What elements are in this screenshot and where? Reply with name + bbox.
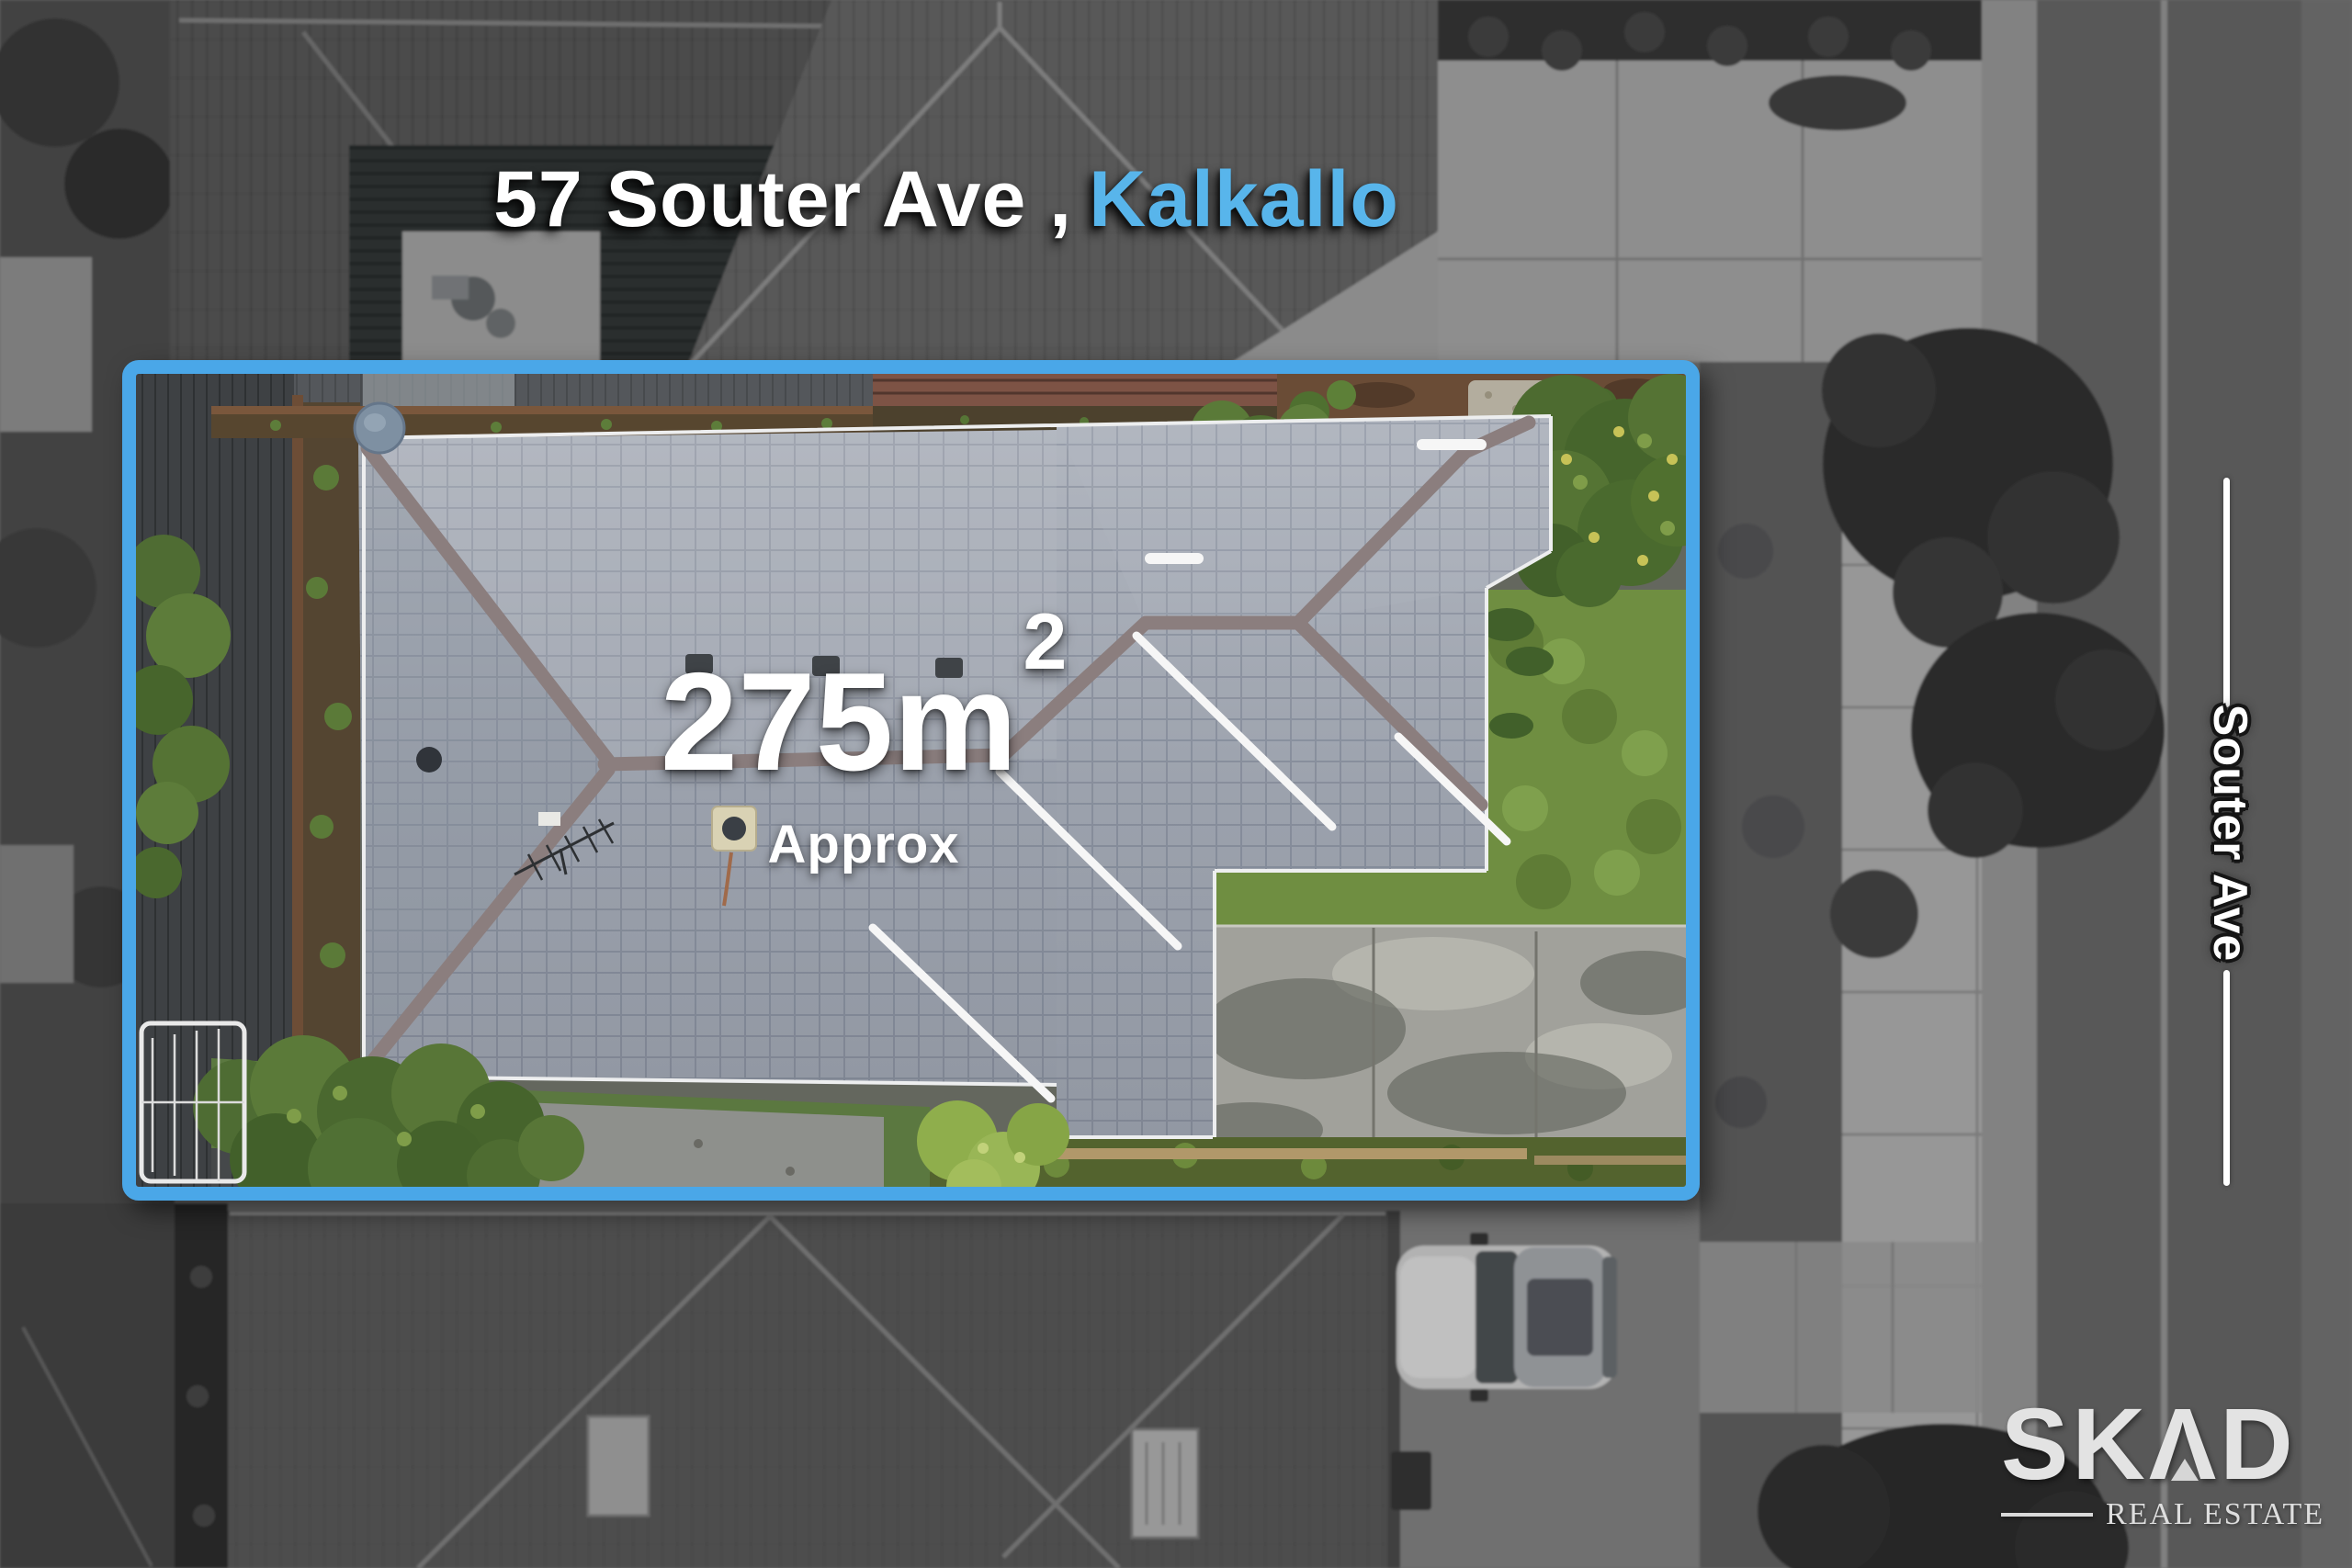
area-value: 275m [661, 644, 1018, 800]
agency-logo-wordmark: SKΛD [2001, 1402, 2318, 1488]
agency-logo-tagline-row: REAL ESTATE [2001, 1497, 2318, 1532]
logo-letter-d: D [2220, 1388, 2296, 1501]
title-address: 57 Souter Ave , [493, 155, 1072, 243]
agency-logo: SKΛD REAL ESTATE [2001, 1402, 2318, 1532]
logo-lambda-glyph: Λ [2149, 1388, 2220, 1501]
logo-a-triangle [2171, 1459, 2199, 1481]
aerial-photo-canvas: 57 Souter Ave ,Kalkallo 275m2 Approx Sou… [0, 0, 2352, 1568]
logo-tagline-rule [2001, 1513, 2093, 1517]
logo-letter-a: Λ [2149, 1402, 2220, 1488]
parked-car [1396, 1233, 1617, 1402]
area-exponent: 2 [1023, 598, 1067, 686]
area-value-row: 275m2 [606, 652, 1121, 792]
page-title: 57 Souter Ave ,Kalkallo [404, 154, 1488, 245]
land-area-label: 275m2 Approx [606, 652, 1121, 875]
title-suburb: Kalkallo [1089, 155, 1399, 243]
area-qualifier: Approx [606, 814, 1121, 875]
street-line-bottom [2223, 970, 2230, 1186]
street-line-top [2223, 478, 2230, 707]
street-name-label: Souter Ave [2202, 705, 2257, 963]
logo-letters-sk: SK [2001, 1388, 2149, 1501]
logo-tagline: REAL ESTATE [2106, 1497, 2324, 1532]
